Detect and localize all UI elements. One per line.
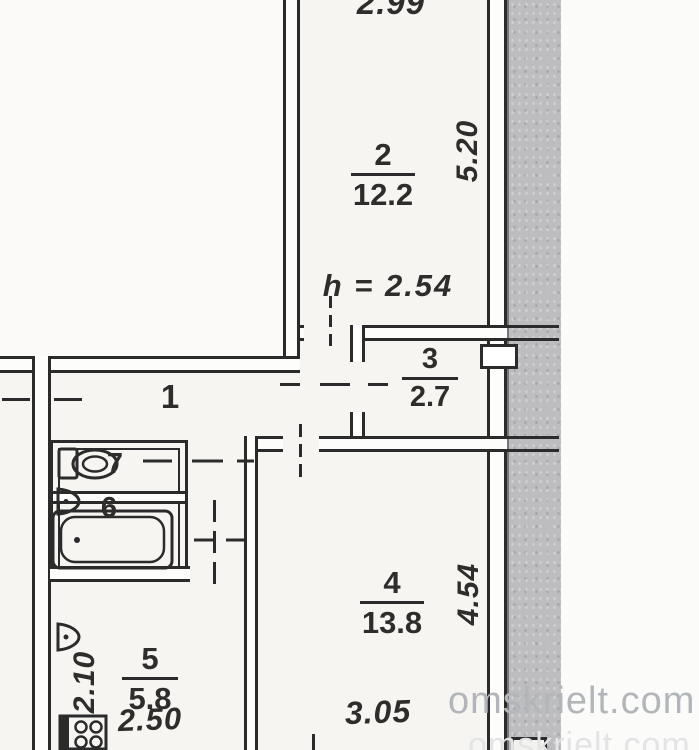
ceiling-height-note: h = 2.54 <box>308 268 468 304</box>
room3-area: 2.7 <box>392 382 468 413</box>
room2-number: 2 <box>338 138 428 171</box>
room2-fraction-bar <box>351 173 415 176</box>
room3-fraction-bar <box>402 377 458 380</box>
room6-number: 6 <box>94 492 124 525</box>
room4-number: 4 <box>350 566 434 599</box>
watermark-text: omskrielt.com <box>448 680 695 723</box>
dim-room2-depth: 5.20 <box>451 101 483 201</box>
dim-top-width: 2.99 <box>336 0 446 22</box>
room5-fraction-bar <box>122 677 178 680</box>
room7-number: 7 <box>100 448 130 481</box>
dim-kitchen-depth: 2.10 <box>68 640 100 724</box>
room4-label: 4 13.8 <box>350 566 434 640</box>
room1-number: 1 <box>152 378 188 416</box>
room5-number: 5 <box>118 642 182 675</box>
watermark-text-faint: omskrielt.com <box>468 726 691 750</box>
room2-label: 2 12.2 <box>338 138 428 212</box>
room3-number: 3 <box>392 344 468 375</box>
dim-room4-width: 3.05 <box>321 692 434 733</box>
room4-area: 13.8 <box>350 606 434 639</box>
floor-plan-scan: 2 12.2 3 2.7 4 13.8 5 5.8 1 7 6 2.99 5.2… <box>0 0 699 750</box>
room2-area: 12.2 <box>338 178 428 211</box>
room3-label: 3 2.7 <box>392 344 468 414</box>
dim-kitchen-width: 2.50 <box>99 700 200 739</box>
dim-room4-depth: 4.54 <box>452 544 484 644</box>
room4-fraction-bar <box>360 601 424 604</box>
